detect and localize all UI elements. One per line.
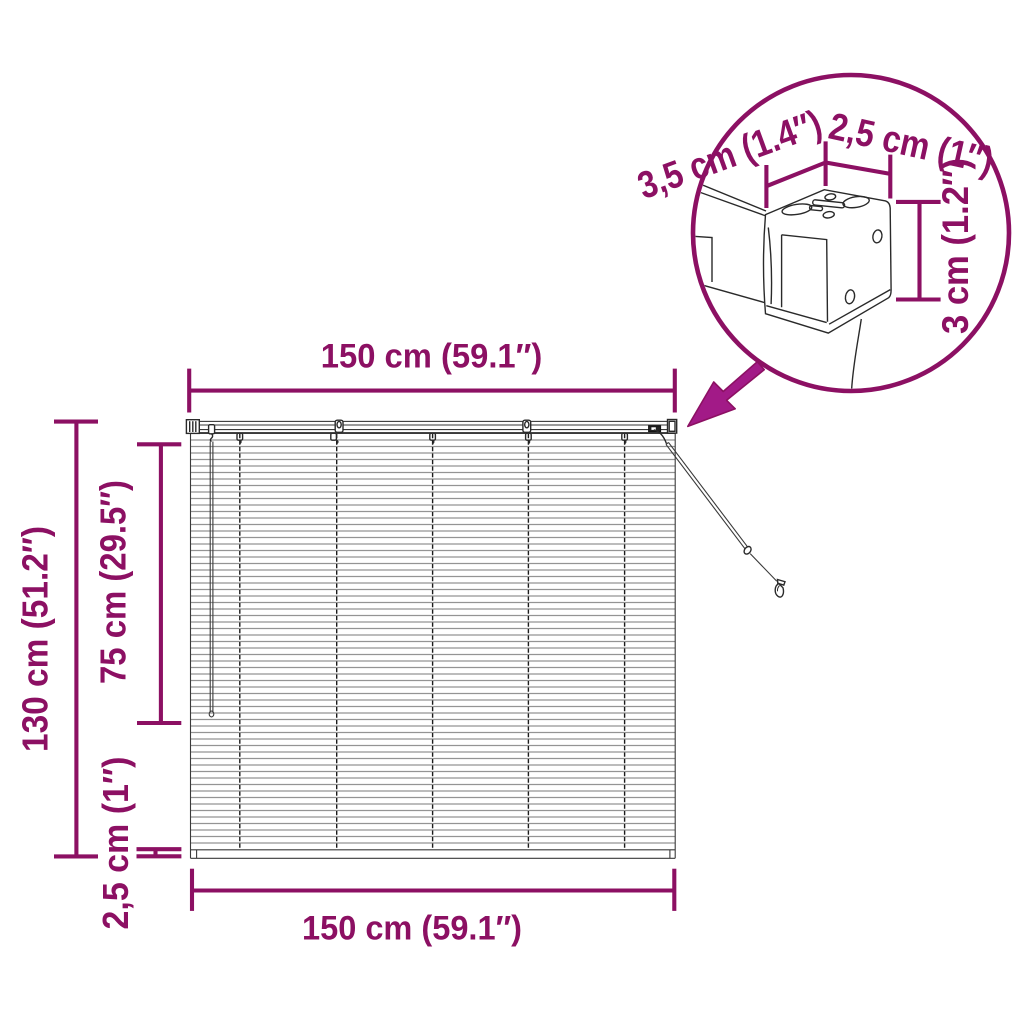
svg-text:150 cm (59.1″): 150 cm (59.1″) (302, 910, 522, 948)
svg-text:2,5 cm (1″): 2,5 cm (1″) (95, 757, 136, 930)
svg-text:150 cm (59.1″): 150 cm (59.1″) (321, 337, 543, 375)
svg-text:3 cm (1.2″): 3 cm (1.2″) (935, 158, 976, 334)
svg-text:130 cm (51.2″): 130 cm (51.2″) (15, 526, 56, 752)
svg-text:75 cm (29.5″): 75 cm (29.5″) (93, 480, 134, 684)
